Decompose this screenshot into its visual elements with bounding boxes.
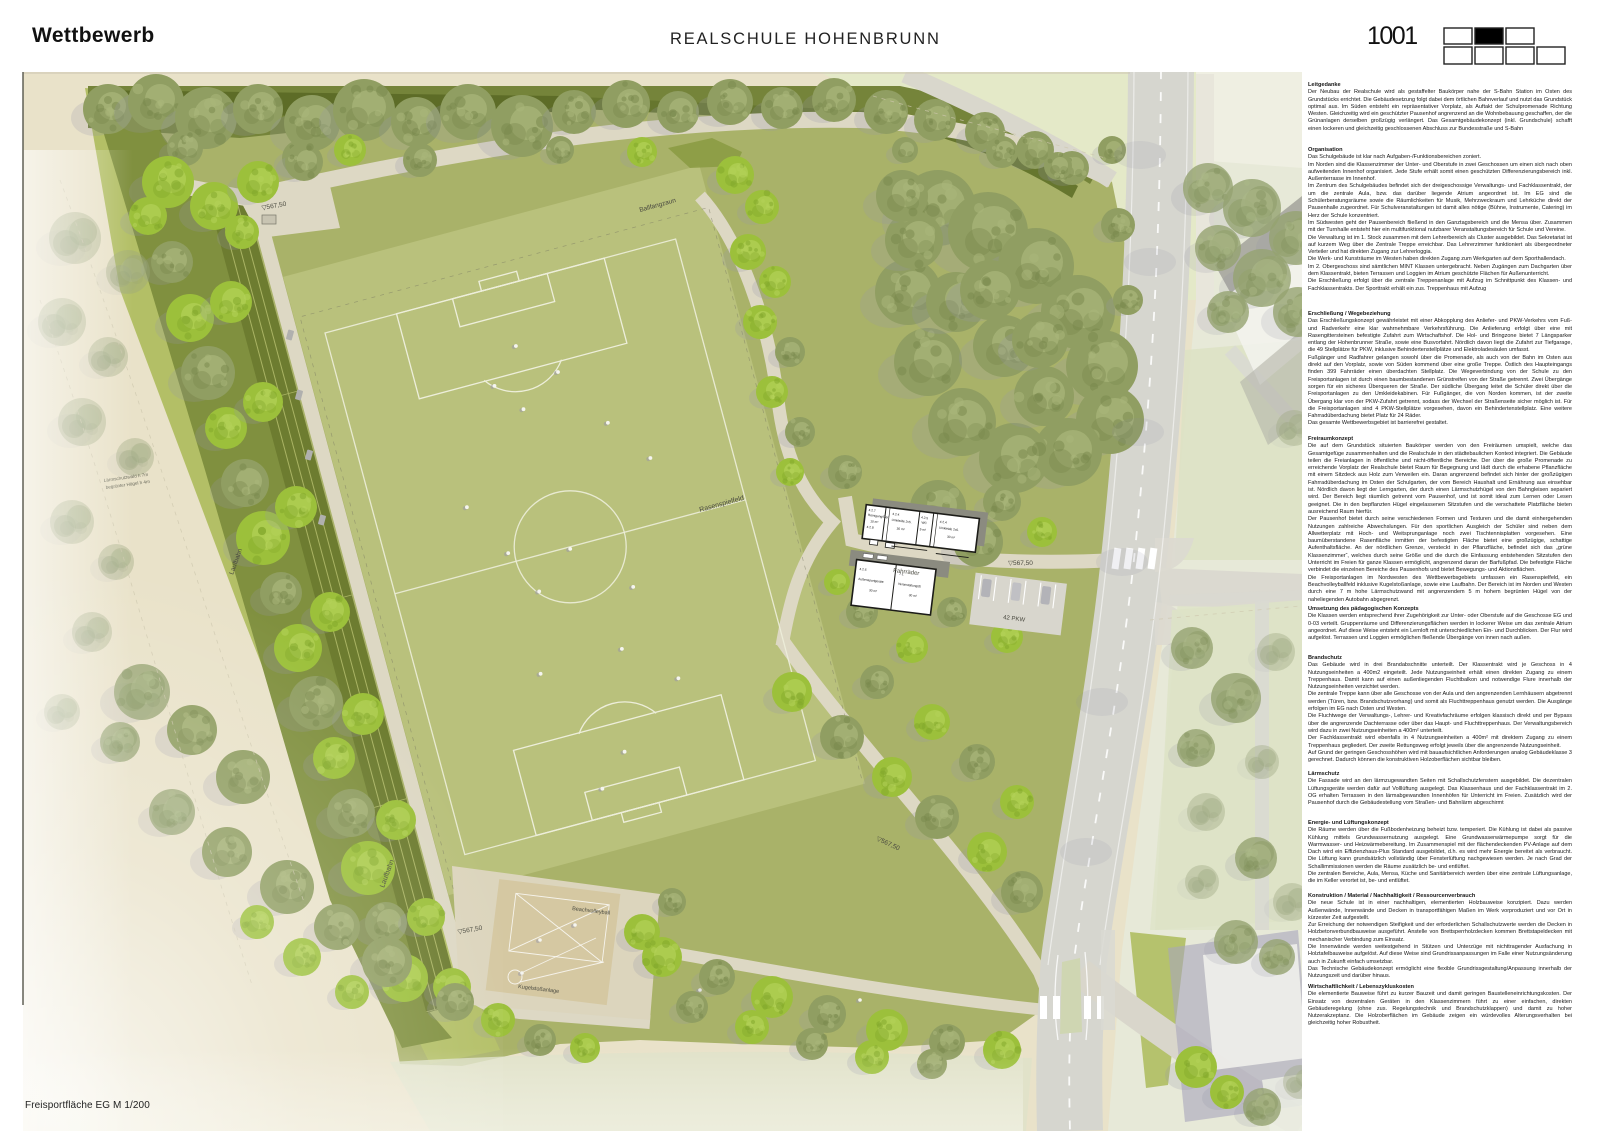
svg-text:▽567,50: ▽567,50 [1008, 560, 1033, 567]
svg-text:9 m²: 9 m² [919, 527, 926, 532]
